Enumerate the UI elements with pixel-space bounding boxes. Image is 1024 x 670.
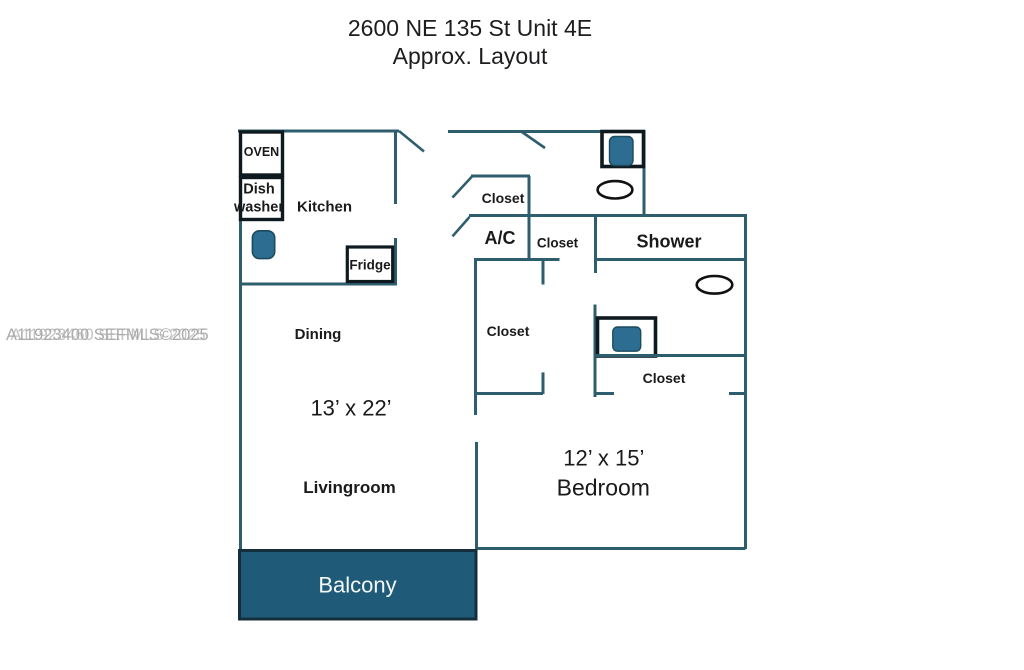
svg-text:Balcony: Balcony — [318, 573, 396, 598]
svg-text:2600 NE 135 St Unit 4E: 2600 NE 135 St Unit 4E — [348, 15, 592, 41]
svg-text:Bedroom: Bedroom — [557, 475, 650, 501]
svg-text:Livingroom: Livingroom — [303, 478, 396, 497]
svg-text:12’ x 15’: 12’ x 15’ — [563, 446, 644, 471]
svg-text:Fridge: Fridge — [349, 258, 391, 273]
svg-text:A11923460 SEFMLS 2025: A11923460 SEFMLS 2025 — [11, 326, 206, 344]
svg-text:Closet: Closet — [643, 370, 686, 386]
svg-text:Dish: Dish — [243, 182, 274, 198]
svg-text:OVEN: OVEN — [244, 145, 279, 159]
svg-text:Closet: Closet — [487, 323, 530, 339]
svg-text:13’ x 22’: 13’ x 22’ — [310, 396, 391, 421]
svg-text:Kitchen: Kitchen — [297, 199, 352, 216]
svg-text:A/C: A/C — [485, 228, 516, 248]
svg-text:Dining: Dining — [295, 326, 342, 343]
svg-text:Shower: Shower — [636, 232, 701, 252]
svg-text:Closet: Closet — [482, 190, 525, 206]
svg-text:washer: washer — [233, 200, 284, 216]
svg-text:Closet: Closet — [537, 236, 579, 251]
svg-text:Approx. Layout: Approx. Layout — [393, 43, 548, 69]
